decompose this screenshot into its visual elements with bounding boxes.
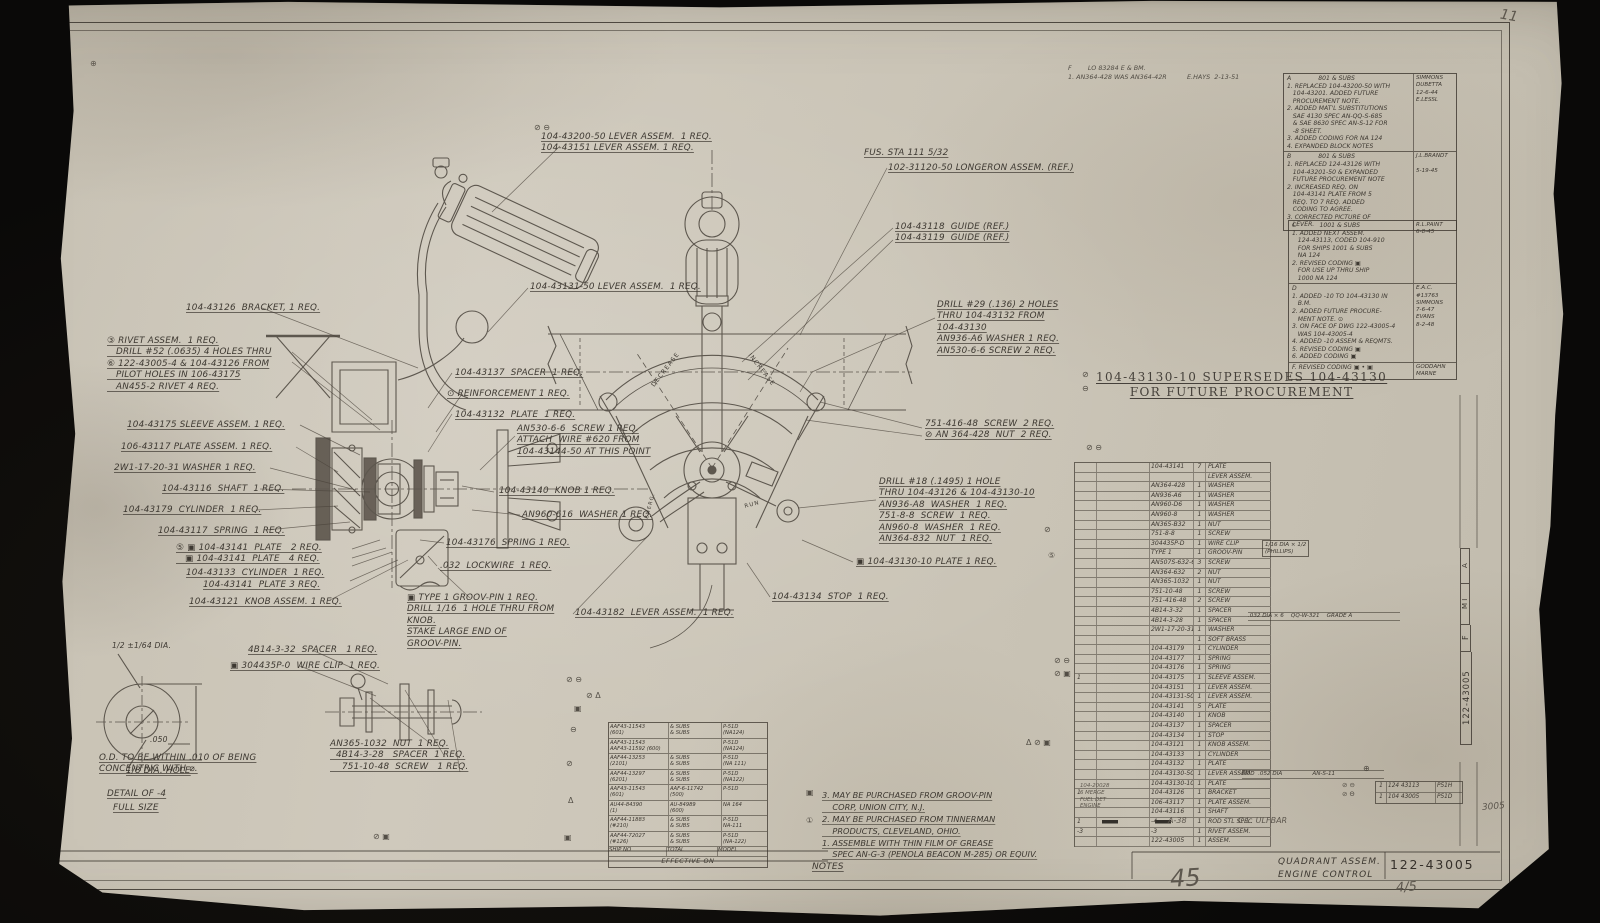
parts-number-cell: 751-416-48: [1150, 597, 1194, 606]
parts-number-cell: 104-43134: [1150, 732, 1194, 741]
parts-number-cell: 4B14-3-32: [1150, 607, 1194, 616]
parts-row: 104-43151 1 LEVER ASSEM.: [1075, 684, 1271, 694]
parts-qty-cell: 1: [1194, 799, 1206, 808]
parts-blank-cell: [1097, 607, 1150, 616]
ref-mark: ⊕: [1363, 765, 1370, 773]
parts-desc-cell: SCREW: [1206, 530, 1271, 539]
parts-row: 104-43132 1 PLATE: [1075, 760, 1271, 770]
parts-qty-cell: 1: [1194, 530, 1206, 539]
parts-blank-cell: [1097, 549, 1150, 558]
parts-row: AN960-D6 1 WASHER: [1075, 501, 1271, 511]
revision-section-d: D 1. ADDED -10 TO 104-43130 IN B.M. 2. A…: [1289, 284, 1456, 362]
next-assembly-row: 1 104 43005 P51D: [1376, 793, 1462, 803]
parts-qty-cell: 1: [1194, 636, 1206, 645]
parts-number-cell: AN960-8: [1150, 511, 1194, 520]
revision-d-text: D 1. ADDED -10 TO 104-43130 IN B.M. 2. A…: [1289, 284, 1414, 361]
ref-mark: ⊘ Δ: [586, 692, 601, 700]
parts-mark-cell: [1075, 540, 1097, 549]
pencil-mark-top-right: 11: [1499, 7, 1519, 26]
next-assembly-qty: 1: [1376, 793, 1387, 803]
parts-desc-cell: SCREW: [1206, 559, 1271, 568]
callout-plates24: ⑤ ▣ 104-43141 PLATE 2 REQ. ▣ 104-43141 P…: [176, 543, 322, 566]
parts-mark-cell: [1075, 645, 1097, 654]
parts-blank-cell: [1097, 511, 1150, 520]
inspector-signature: C.L. ULFBAR: [1238, 816, 1287, 825]
parts-desc-cell: WASHER: [1206, 626, 1271, 635]
ref-mark: ⊘: [1044, 526, 1051, 534]
callout-plate-assem: 106-43117 PLATE ASSEM. 1 REQ.: [121, 442, 272, 453]
detail-od-note: O.D. TO BE WITHIN .010 OF BEING CONCENTR…: [99, 753, 256, 776]
parts-qty-cell: 1: [1194, 540, 1206, 549]
ref-mark: ⊕: [90, 60, 97, 68]
callout-groovpin: ▣ TYPE 1 GROOV-PIN 1 REQ. DRILL 1/16 1 H…: [407, 593, 554, 650]
parts-blank-cell: [1097, 501, 1150, 510]
parts-row: 104-43133 1 CYLINDER: [1075, 751, 1271, 761]
callout-shaft: 104-43116 SHAFT 1 REQ.: [162, 484, 284, 495]
parts-ext-brass: .032 DIA × 6 QQ-W-321 GRADE A: [1248, 612, 1400, 621]
parts-qty-cell: 1: [1194, 837, 1206, 846]
parts-blank-cell: [1097, 530, 1150, 539]
parts-number-cell: 104-43131-50: [1150, 693, 1194, 702]
revision-c-text: C 1001 & SUBS 1. ADDED NEXT ASSEM. 124-4…: [1289, 221, 1414, 283]
parts-number-cell: 104-43179: [1150, 645, 1194, 654]
effectivity-model-cell: P-51D (NA122): [722, 770, 767, 785]
parts-blank-cell: [1097, 722, 1150, 731]
parts-mark-cell: [1075, 722, 1097, 731]
parts-desc-cell: SPRING: [1206, 655, 1271, 664]
parts-number-cell: 104-43176: [1150, 664, 1194, 673]
parts-mark-cell: [1075, 617, 1097, 626]
parts-qty-cell: 1: [1194, 511, 1206, 520]
parts-qty-cell: 1: [1194, 828, 1206, 837]
parts-desc-cell: PLATE: [1206, 703, 1271, 712]
effectivity-title: EFFECTIVE ON: [609, 857, 767, 867]
callout-screw751: 751-416-48 SCREW 2 REQ. ⊘ AN 364-428 NUT…: [925, 419, 1054, 442]
parts-row: 1 104-43175 1 SLEEVE ASSEM.: [1075, 674, 1271, 684]
parts-blank-cell: [1097, 751, 1150, 760]
parts-number-cell: 4B14-3-28: [1150, 617, 1194, 626]
parts-number-cell: 751-8-8: [1150, 530, 1194, 539]
parts-blank-cell: [1097, 588, 1150, 597]
parts-row: 751-10-48 1 SCREW: [1075, 588, 1271, 598]
parts-row: AN936-A6 1 WASHER: [1075, 492, 1271, 502]
parts-number-cell: 104-43121: [1150, 741, 1194, 750]
page-number-large: 45: [1169, 863, 1201, 893]
effectivity-ship-cell: AAF44-72027 (#126): [609, 832, 669, 847]
revision-block-cdf: C 1001 & SUBS 1. ADDED NEXT ASSEM. 124-4…: [1288, 220, 1457, 380]
callout-cyl133: 104-43133 CYLINDER 1 REQ.: [186, 568, 324, 579]
margin-id-strip: A M I F 122-43005: [1460, 548, 1477, 745]
effectivity-footer-shipno: SHIP NO: [609, 847, 667, 856]
parts-blank-cell: [1097, 521, 1150, 530]
callout-lever-top: 104-43200-50 LEVER ASSEM. 1 REQ. 104-431…: [541, 132, 712, 155]
effectivity-model-cell: P-51D (NA 111): [722, 754, 767, 769]
parts-blank-cell: [1097, 463, 1150, 472]
parts-qty-cell: 1: [1194, 492, 1206, 501]
effectivity-row: AU44-84390 (1) AU-84989 (600) NA 164: [609, 801, 767, 817]
parts-row: 304435P-D 1 WIRE CLIP: [1075, 540, 1271, 550]
revision-f-text: F. REVISED CODING ▣ • ▣: [1289, 363, 1414, 380]
ref-mark: Δ: [568, 797, 573, 805]
parts-qty-cell: 1: [1194, 722, 1206, 731]
parts-number-cell: 104-43137: [1150, 722, 1194, 731]
parts-qty-cell: 1: [1194, 607, 1206, 616]
parts-desc-cell: LEVER ASSEM.: [1206, 473, 1271, 482]
parts-qty-cell: 1: [1194, 588, 1206, 597]
parts-blank-cell: [1097, 645, 1150, 654]
parts-number-cell: 106-43117: [1150, 799, 1194, 808]
parts-blank-cell: [1097, 703, 1150, 712]
effectivity-footer-model: MODEL: [718, 847, 767, 856]
parts-qty-cell: 1: [1194, 521, 1206, 530]
revision-section-f: F. REVISED CODING ▣ • ▣ GODDAHN MARNE: [1289, 363, 1456, 380]
effectivity-model-cell: P-51D: [722, 785, 767, 800]
parts-mark-cell: [1075, 607, 1097, 616]
effectivity-ship-cell: AAF44-11883 (#210): [609, 816, 669, 831]
parts-qty-cell: 1: [1194, 482, 1206, 491]
parts-number-cell: 104-43175: [1150, 674, 1194, 683]
next-assembly-model: P51D: [1436, 793, 1462, 803]
parts-blank-cell: [1097, 578, 1150, 587]
ref-mark: ①: [806, 817, 813, 825]
parts-blank-cell: [1097, 760, 1150, 769]
parts-row: 104-43137 1 SPACER: [1075, 722, 1271, 732]
parts-mark-cell: 1: [1075, 818, 1097, 827]
parts-row: AN364-428 1 WASHER: [1075, 482, 1271, 492]
ref-mark: ⊘ ⊖: [1342, 782, 1355, 789]
revision-b-text: B 801 & SUBS 1. REPLACED 124-43126 WITH …: [1284, 152, 1414, 229]
parts-qty-cell: 1: [1194, 818, 1206, 827]
parts-number-cell: AN364-632: [1150, 569, 1194, 578]
parts-row: 104-43141 7 PLATE: [1075, 463, 1271, 473]
effectivity-table: AAF43-11543 (601) & SUBS & SUBS P-51D (N…: [608, 722, 768, 868]
parts-qty-cell: 1: [1194, 501, 1206, 510]
detail-title: DETAIL OF -4: [107, 789, 166, 800]
parts-row: 751-416-48 2 SCREW: [1075, 597, 1271, 607]
parts-row: AN365-1032 1 NUT: [1075, 578, 1271, 588]
parts-row: AN364-632 2 NUT: [1075, 569, 1271, 579]
parts-qty-cell: 1: [1194, 655, 1206, 664]
effectivity-row: AAF43-11543 (601) & SUBS & SUBS P-51D (N…: [609, 723, 767, 739]
effectivity-model-cell: P-51D NA-111: [722, 816, 767, 831]
parts-row: LEVER ASSEM.: [1075, 473, 1271, 483]
callout-knob-assem: 104-43121 KNOB ASSEM. 1 REQ.: [189, 597, 342, 608]
parts-qty-cell: 1: [1194, 626, 1206, 635]
effectivity-rows: AAF43-11543 (601) & SUBS & SUBS P-51D (N…: [609, 723, 767, 847]
parts-row: 104-43140 1 KNOB: [1075, 712, 1271, 722]
effectivity-ship-cell: AAF44-13253 (2101): [609, 754, 669, 769]
parts-desc-cell: PLATE: [1206, 463, 1271, 472]
callout-spacer432: 4B14-3-32 SPACER 1 REQ.: [248, 645, 377, 656]
callout-washer-2w1: 2W1-17-20-31 WASHER 1 REQ.: [114, 463, 256, 474]
notes-block: 3. MAY BE PURCHASED FROM GROOV-PIN CORP,…: [822, 790, 1037, 861]
parts-desc-cell: BRACKET: [1206, 789, 1271, 798]
parts-number-cell: 751-10-48: [1150, 588, 1194, 597]
parts-number-cell: 104-43130-50: [1150, 770, 1194, 779]
effectivity-subs-cell: & SUBS & SUBS: [669, 770, 722, 785]
effectivity-ship-cell: AAF43-11543 (601): [609, 723, 669, 738]
parts-blank-cell: [1097, 492, 1150, 501]
detail-dia-label: 1/2 ±1/64 DIA.: [112, 641, 171, 651]
parts-row: 104-43131-50 1 LEVER ASSEM.: [1075, 693, 1271, 703]
effectivity-subs-cell: & SUBS & SUBS: [669, 723, 722, 738]
parts-mark-cell: [1075, 578, 1097, 587]
parts-row: 104-43134 1 STOP: [1075, 732, 1271, 742]
callout-spacer137: 104-43137 SPACER 1 REQ.: [455, 368, 583, 379]
parts-qty-cell: 1: [1194, 674, 1206, 683]
parts-qty-cell: 1: [1194, 645, 1206, 654]
next-assembly-row: 1 124 43113 P51H: [1376, 782, 1462, 793]
parts-qty-cell: 1: [1194, 741, 1206, 750]
callout-plate132: 104-43132 PLATE 1 REQ.: [455, 410, 575, 421]
callout-cyl179: 104-43179 CYLINDER 1 REQ.: [123, 505, 261, 516]
effectivity-row: AAF43-11543 AAF43-11592 (600) P-51D (NA1…: [609, 739, 767, 755]
parts-bottom-left-note: A-38: [1168, 816, 1187, 825]
effectivity-model-cell: P-51D (NA124): [722, 739, 767, 754]
ref-mark: ⊘ ▣: [373, 833, 390, 841]
effectivity-row: AAF44-13253 (2101) & SUBS & SUBS P-51D (…: [609, 754, 767, 770]
parts-blank-cell: [1097, 837, 1150, 846]
detail-scale: FULL SIZE: [113, 803, 159, 814]
parts-mark-cell: [1075, 501, 1097, 510]
callout-lever131: 104-43131-50 LEVER ASSEM. 1 REQ.: [530, 282, 701, 293]
parts-mark-cell: [1075, 597, 1097, 606]
parts-blank-cell: [1097, 597, 1150, 606]
parts-mark-cell: [1075, 492, 1097, 501]
parts-number-cell: AN365-B32: [1150, 521, 1194, 530]
parts-row: 4B14-3-28 1 SPACER: [1075, 617, 1271, 627]
parts-mark-cell: [1075, 732, 1097, 741]
parts-number-cell: 104-43141: [1150, 463, 1194, 472]
parts-number-cell: 104-43126: [1150, 789, 1194, 798]
parts-blank-cell: [1097, 473, 1150, 482]
parts-number-cell: AN507S-632-6: [1150, 559, 1194, 568]
parts-row: 104-43141 5 PLATE: [1075, 703, 1271, 713]
effectivity-subs-cell: AU-84989 (600): [669, 801, 722, 816]
parts-row: 751-8-8 1 SCREW: [1075, 530, 1271, 540]
effectivity-subs-cell: [669, 739, 722, 754]
parts-blank-cell: [1097, 626, 1150, 635]
parts-desc-cell: RIVET ASSEM.: [1206, 828, 1271, 837]
parts-number-cell: 104-43151: [1150, 684, 1194, 693]
parts-number-cell: [1150, 636, 1194, 645]
parts-desc-cell: LEVER ASSEM.: [1206, 693, 1271, 702]
parts-qty-cell: 1: [1194, 693, 1206, 702]
next-assembly-model: P51H: [1436, 782, 1462, 792]
revision-a-text: A 801 & SUBS 1. REPLACED 104-43200-50 WI…: [1284, 74, 1414, 151]
parts-qty-cell: 1: [1194, 549, 1206, 558]
parts-mark-cell: -3: [1075, 828, 1097, 837]
margin-strip-number: 122-43005: [1460, 652, 1472, 745]
effectivity-footer-total: TOTAL: [667, 847, 718, 856]
callout-drill18: DRILL #18 (.1495) 1 HOLE THRU 104-43126 …: [879, 477, 1035, 546]
callout-drill29: DRILL #29 (.136) 2 HOLES THRU 104-43132 …: [937, 300, 1059, 357]
parts-qty-cell: 1: [1194, 617, 1206, 626]
blueprint-scan: 104-43200-50 LEVER ASSEM. 1 REQ. 104-431…: [0, 0, 1600, 923]
callout-lever182: 104-43182 LEVER ASSEM. 1 REQ.: [575, 608, 734, 619]
parts-desc-cell: SLEEVE ASSEM.: [1206, 674, 1271, 683]
ref-mark: ⊖: [570, 726, 577, 734]
callout-bracket: 104-43126 BRACKET, 1 REQ.: [186, 303, 320, 314]
drawing-title: QUADRANT ASSEM. ENGINE CONTROL: [1278, 856, 1381, 881]
parts-qty-cell: 1: [1194, 732, 1206, 741]
revision-section-c: C 1001 & SUBS 1. ADDED NEXT ASSEM. 124-4…: [1289, 221, 1456, 284]
parts-qty-cell: [1194, 473, 1206, 482]
ref-mark: ⊘ ⊖: [534, 124, 550, 132]
revision-c-sig: R.L.PAINT 6-8-45: [1414, 221, 1456, 283]
revision-b-sig: J.L.BRANDT 5-19-45: [1414, 152, 1456, 229]
parts-desc-cell: SCREW: [1206, 597, 1271, 606]
parts-blank-cell: [1097, 770, 1150, 779]
effectivity-subs-cell: & SUBS & SUBS: [669, 832, 722, 847]
parts-qty-cell: 1: [1194, 664, 1206, 673]
parts-number-cell: 104-43133: [1150, 751, 1194, 760]
parts-ext-groovpin: 1/16 DIA × 1/2 (PHILLIPS): [1262, 540, 1309, 557]
parts-blank-cell: [1097, 732, 1150, 741]
callout-washer960: AN960-616 WASHER 1 REQ.: [522, 510, 652, 521]
parts-blank-cell: [1097, 674, 1150, 683]
revision-block-ab: A 801 & SUBS 1. REPLACED 104-43200-50 WI…: [1283, 73, 1457, 231]
detail-050-label: .050: [150, 735, 168, 745]
parts-mark-cell: [1075, 664, 1097, 673]
ref-mark: ⊘ ⊖: [566, 676, 582, 684]
parts-desc-cell: SCREW: [1206, 588, 1271, 597]
parts-desc-cell: KNOB: [1206, 712, 1271, 721]
parts-mark-cell: [1075, 473, 1097, 482]
parts-qty-cell: 1: [1194, 712, 1206, 721]
parts-number-cell: AN960-D6: [1150, 501, 1194, 510]
effectivity-subs-cell: & SUBS & SUBS: [669, 754, 722, 769]
parts-desc-cell: SOFT BRASS: [1206, 636, 1271, 645]
parts-blank-cell: [1097, 741, 1150, 750]
page-number-small: 4/5: [1396, 879, 1418, 895]
parts-mark-cell: [1075, 751, 1097, 760]
parts-desc-cell: KNOB ASSEM.: [1206, 741, 1271, 750]
parts-row: AN365-B32 1 NUT: [1075, 521, 1271, 531]
parts-row: 2W1-17-20-31 1 WASHER: [1075, 626, 1271, 636]
revision-section-a: A 801 & SUBS 1. REPLACED 104-43200-50 WI…: [1284, 74, 1456, 152]
effectivity-row: AAF44-13297 (6201) & SUBS & SUBS P-51D (…: [609, 770, 767, 786]
next-assembly-number: 104 43005: [1387, 793, 1436, 803]
effectivity-ship-cell: AU44-84390 (1): [609, 801, 669, 816]
parts-blank-cell: [1097, 559, 1150, 568]
parts-blank-cell: [1097, 664, 1150, 673]
parts-desc-cell: LEVER ASSEM.: [1206, 684, 1271, 693]
parts-qty-cell: 3: [1194, 559, 1206, 568]
callout-guides: 104-43118 GUIDE (REF.) 104-43119 GUIDE (…: [895, 222, 1009, 245]
parts-number-cell: 304435P-D: [1150, 540, 1194, 549]
ref-mark: ▣: [574, 705, 582, 713]
effectivity-ship-cell: AAF43-11543 AAF43-11592 (600): [609, 739, 669, 754]
callout-knob140: 104-43140 KNOB 1 REQ.: [499, 486, 615, 497]
parts-mark-cell: [1075, 636, 1097, 645]
margin-strip-letter-a: A: [1460, 548, 1470, 584]
notes-title: NOTES: [812, 862, 844, 874]
callout-plate130: ▣ 104-43130-10 PLATE 1 REQ.: [856, 557, 997, 568]
ref-mark: ⊘: [566, 760, 573, 768]
revision-a-sig: SIMMONS DUBETTA 12-6-44 E.LESSL: [1414, 74, 1456, 151]
parts-row: 122-43005 1 ASSEM.: [1075, 837, 1271, 847]
parts-blank-cell: [1097, 636, 1150, 645]
parts-mark-cell: [1075, 569, 1097, 578]
parts-desc-cell: PLATE: [1206, 760, 1271, 769]
parts-mark-cell: [1075, 463, 1097, 472]
parts-number-cell: 122-43005: [1150, 837, 1194, 846]
parts-mark-cell: [1075, 703, 1097, 712]
revision-f-sig: GODDAHN MARNE: [1414, 363, 1456, 380]
callout-bolt-group: AN365-1032 NUT 1 REQ. 4B14-3-28 SPACER 1…: [330, 739, 468, 773]
parts-blank-cell: [1097, 569, 1150, 578]
next-assembly-table: 1 124 43113 P51H 1 104 43005 P51D: [1375, 781, 1463, 804]
parts-qty-cell: 5: [1194, 703, 1206, 712]
parts-desc-cell: PLATE ASSEM.: [1206, 799, 1271, 808]
parts-qty-cell: 2: [1194, 569, 1206, 578]
parts-blank-cell: [1097, 684, 1150, 693]
parts-number-cell: 104-43140: [1150, 712, 1194, 721]
parts-qty-cell: 1: [1194, 808, 1206, 817]
parts-qty-cell: 1: [1194, 789, 1206, 798]
parts-mark-cell: [1075, 712, 1097, 721]
parts-number-cell: 104-43132: [1150, 760, 1194, 769]
callout-lockwire: .032 LOCKWIRE 1 REQ.: [440, 561, 551, 572]
parts-row: TYPE 1 1 GROOV-PIN: [1075, 549, 1271, 559]
parts-desc-cell: SPRING: [1206, 664, 1271, 673]
effectivity-model-cell: NA 164: [722, 801, 767, 816]
parts-desc-cell: NUT: [1206, 569, 1271, 578]
parts-number-cell: 2W1-17-20-31: [1150, 626, 1194, 635]
parts-desc-cell: WASHER: [1206, 482, 1271, 491]
parts-row: AN507S-632-6 3 SCREW: [1075, 559, 1271, 569]
revision-d-sig: E.A.C. #13763 SIMMONS 7-6-47 EVANS 8-2-4…: [1414, 284, 1456, 361]
parts-mark-cell: [1075, 549, 1097, 558]
parts-number-cell: 104-43141: [1150, 703, 1194, 712]
callout-wireclip: ▣ 304435P-0 WIRE CLIP 1 REQ.: [230, 661, 380, 672]
revision-section-b: B 801 & SUBS 1. REPLACED 124-43126 WITH …: [1284, 152, 1456, 229]
parts-blank-cell: [1097, 828, 1150, 837]
parts-qty-cell: 1: [1194, 760, 1206, 769]
parts-desc-cell: STOP: [1206, 732, 1271, 741]
parts-desc-cell: WASHER: [1206, 511, 1271, 520]
callout-reinforcement: ⊙ REINFORCEMENT 1 REQ.: [447, 389, 570, 400]
parts-row: 1 SOFT BRASS: [1075, 636, 1271, 646]
parts-blank-cell: [1097, 712, 1150, 721]
parts-qty-cell: 1: [1194, 578, 1206, 587]
callout-an530: AN530-6-6 SCREW 1 REQ. ATTACH WIRE #620 …: [517, 424, 651, 458]
effectivity-ship-cell: AAF44-13297 (6201): [609, 770, 669, 785]
parts-desc-cell: WASHER: [1206, 501, 1271, 510]
callout-spring117: 104-43117 SPRING 1 REQ.: [158, 526, 285, 537]
parts-mark-cell: [1075, 626, 1097, 635]
effectivity-footer: SHIP NO TOTAL MODEL: [609, 847, 767, 857]
parts-qty-cell: 7: [1194, 463, 1206, 472]
parts-mark-cell: [1075, 770, 1097, 779]
parts-blank-cell: [1097, 617, 1150, 626]
parts-mark-cell: [1075, 684, 1097, 693]
parts-mark-cell: [1075, 559, 1097, 568]
parts-mark-cell: [1075, 588, 1097, 597]
parts-mark-cell: [1075, 511, 1097, 520]
callout-plate3: 104-43141 PLATE 3 REQ.: [203, 580, 320, 591]
parts-number-cell: [1150, 473, 1194, 482]
change-stamp: F LO 83284 E & BM. 1. AN364-428 WAS AN36…: [1068, 64, 1239, 81]
parts-row: AN960-8 1 WASHER: [1075, 511, 1271, 521]
parts-desc-cell: WASHER: [1206, 492, 1271, 501]
effectivity-subs-cell: & SUBS & SUBS: [669, 816, 722, 831]
callout-fus-sta: FUS. STA 111 5/32: [864, 148, 948, 159]
effectivity-model-cell: P-51D (NA124): [722, 723, 767, 738]
parts-row: -3 -3 1 RIVET ASSEM.: [1075, 828, 1271, 838]
parts-row: 104-43121 1 KNOB ASSEM.: [1075, 741, 1271, 751]
